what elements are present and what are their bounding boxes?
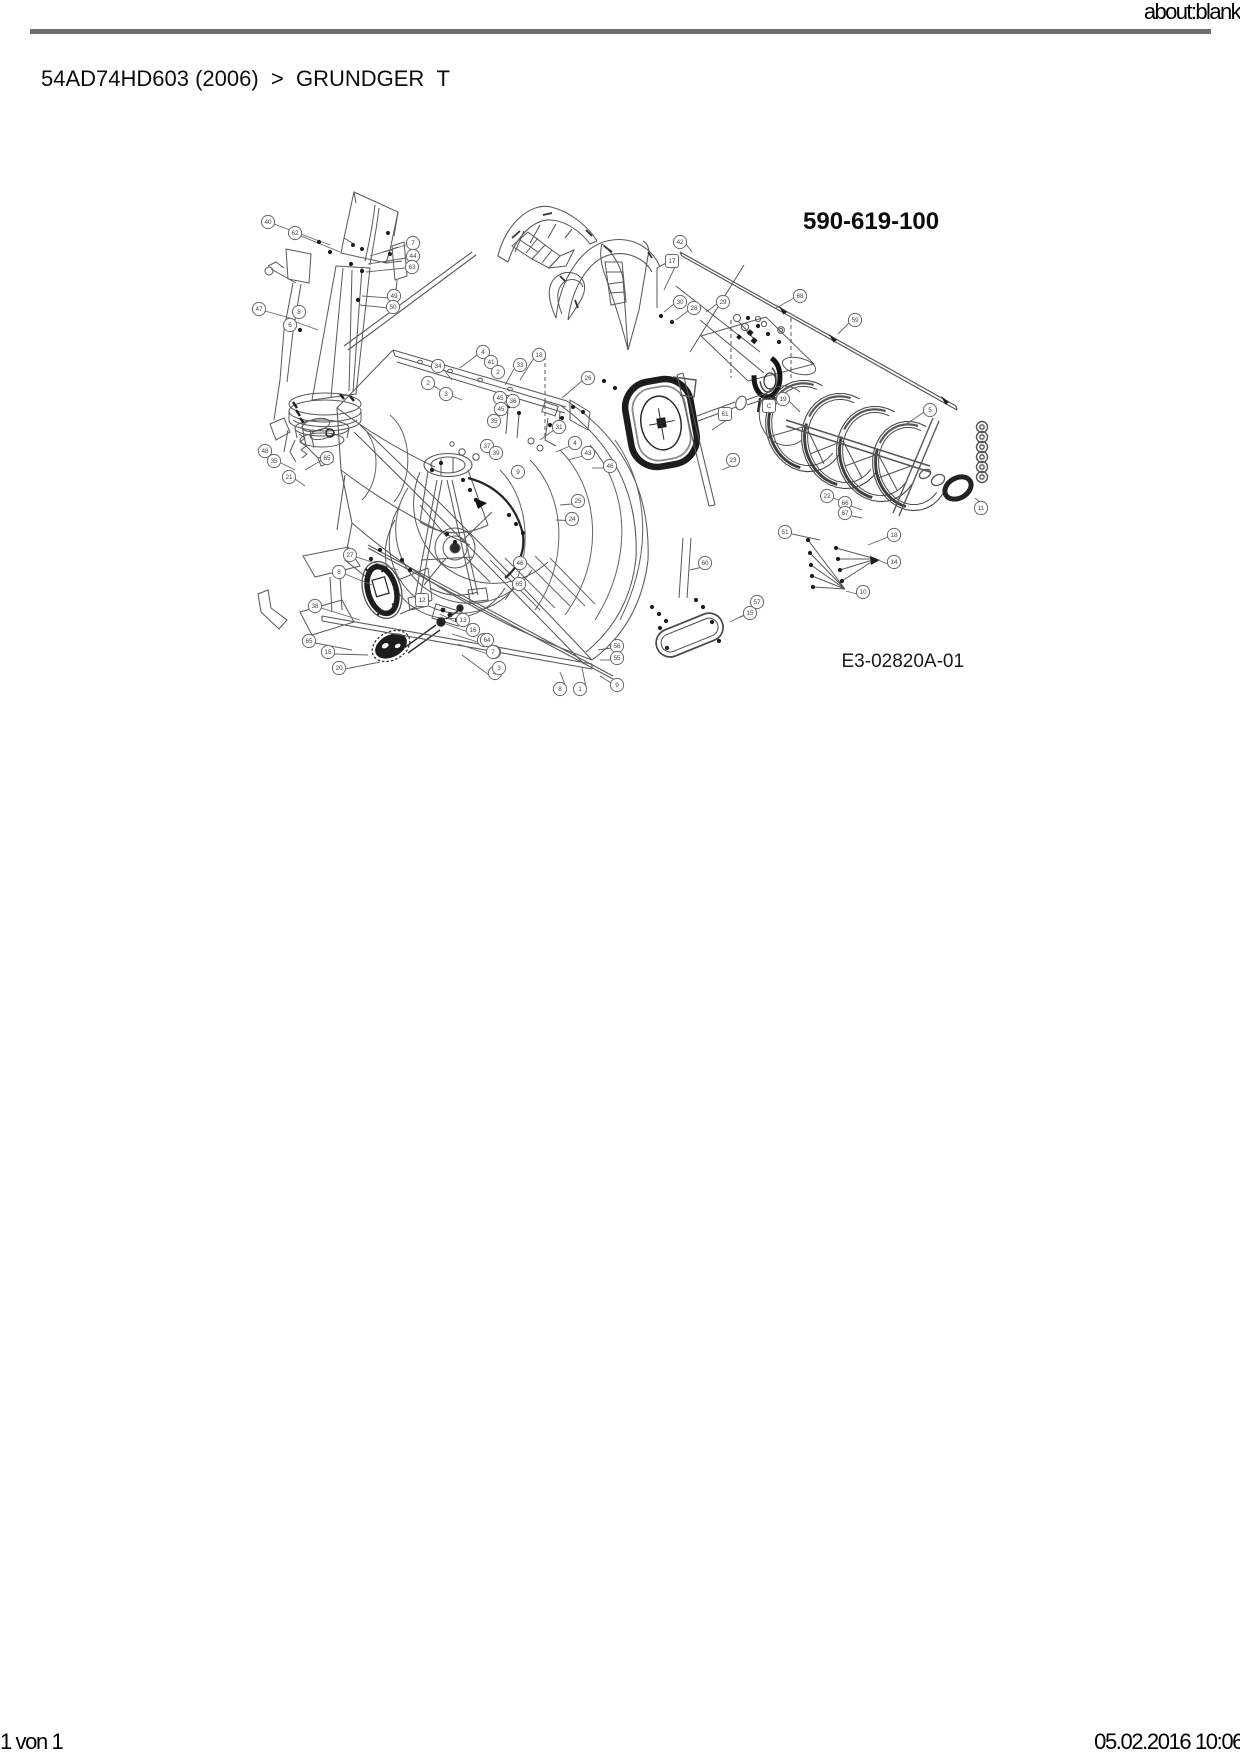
svg-text:45: 45: [497, 406, 505, 413]
svg-text:41: 41: [487, 359, 495, 366]
svg-text:60: 60: [701, 560, 709, 567]
svg-text:36: 36: [509, 398, 517, 405]
svg-text:19: 19: [779, 396, 787, 403]
svg-text:38: 38: [311, 603, 319, 610]
svg-text:7: 7: [411, 240, 415, 247]
svg-text:1: 1: [578, 686, 582, 693]
svg-text:4: 4: [573, 440, 577, 447]
svg-text:34: 34: [434, 363, 442, 370]
svg-text:55: 55: [613, 655, 621, 662]
svg-text:28: 28: [690, 305, 698, 312]
svg-text:35: 35: [270, 458, 278, 465]
svg-text:12: 12: [418, 597, 426, 604]
svg-text:11: 11: [978, 505, 985, 512]
svg-text:17: 17: [668, 258, 676, 265]
svg-text:6: 6: [288, 322, 292, 329]
svg-text:45: 45: [496, 395, 504, 402]
svg-text:62: 62: [291, 230, 299, 237]
svg-text:5: 5: [928, 407, 932, 414]
svg-text:64: 64: [483, 637, 491, 644]
svg-text:7: 7: [491, 649, 495, 656]
svg-text:57: 57: [753, 599, 761, 606]
svg-text:51: 51: [781, 529, 789, 536]
svg-text:15: 15: [324, 649, 332, 656]
svg-text:C: C: [767, 403, 772, 410]
svg-text:4: 4: [481, 349, 485, 356]
svg-text:46: 46: [606, 463, 614, 470]
svg-text:E3-02820A-01: E3-02820A-01: [842, 651, 965, 672]
svg-text:44: 44: [409, 253, 417, 260]
svg-text:18: 18: [535, 352, 543, 359]
svg-text:10: 10: [859, 589, 867, 596]
svg-text:8: 8: [297, 309, 301, 316]
svg-text:3: 3: [444, 391, 448, 398]
svg-text:47: 47: [255, 306, 263, 313]
svg-text:33: 33: [516, 362, 524, 369]
svg-text:590-619-100: 590-619-100: [803, 208, 939, 235]
svg-text:26: 26: [584, 375, 592, 382]
svg-text:15: 15: [746, 610, 754, 617]
svg-text:48: 48: [261, 448, 269, 455]
svg-text:25: 25: [574, 498, 582, 505]
svg-text:24: 24: [568, 516, 576, 523]
svg-text:43: 43: [584, 450, 592, 457]
svg-text:65: 65: [305, 638, 313, 645]
svg-text:39: 39: [492, 450, 500, 457]
svg-text:14: 14: [890, 559, 898, 566]
svg-text:9: 9: [615, 682, 619, 689]
svg-text:30: 30: [676, 299, 684, 306]
svg-text:65: 65: [515, 581, 523, 588]
svg-text:23: 23: [729, 457, 737, 464]
svg-text:35: 35: [490, 418, 498, 425]
svg-text:22: 22: [823, 493, 831, 500]
svg-text:42: 42: [676, 239, 684, 246]
svg-text:29: 29: [719, 299, 727, 306]
svg-text:8: 8: [558, 686, 562, 693]
svg-text:49: 49: [390, 293, 398, 300]
svg-text:61: 61: [721, 411, 729, 418]
svg-text:20: 20: [335, 665, 343, 672]
svg-text:13: 13: [459, 617, 467, 624]
svg-text:46: 46: [516, 560, 524, 567]
svg-text:31: 31: [555, 424, 563, 431]
svg-text:21: 21: [285, 474, 293, 481]
svg-text:18: 18: [890, 532, 898, 539]
svg-text:67: 67: [841, 510, 849, 517]
svg-text:59: 59: [851, 317, 859, 324]
svg-text:16: 16: [469, 627, 477, 634]
svg-text:50: 50: [389, 304, 397, 311]
svg-text:37: 37: [483, 443, 491, 450]
svg-text:40: 40: [264, 219, 272, 226]
svg-text:3: 3: [497, 665, 501, 672]
svg-text:2: 2: [426, 380, 430, 387]
svg-text:56: 56: [613, 643, 621, 650]
svg-text:2: 2: [496, 369, 500, 376]
svg-text:68: 68: [796, 293, 804, 300]
svg-text:27: 27: [346, 552, 354, 559]
svg-text:8: 8: [337, 569, 341, 576]
svg-text:65: 65: [323, 455, 331, 462]
svg-text:63: 63: [408, 264, 416, 271]
svg-text:9: 9: [516, 469, 520, 476]
